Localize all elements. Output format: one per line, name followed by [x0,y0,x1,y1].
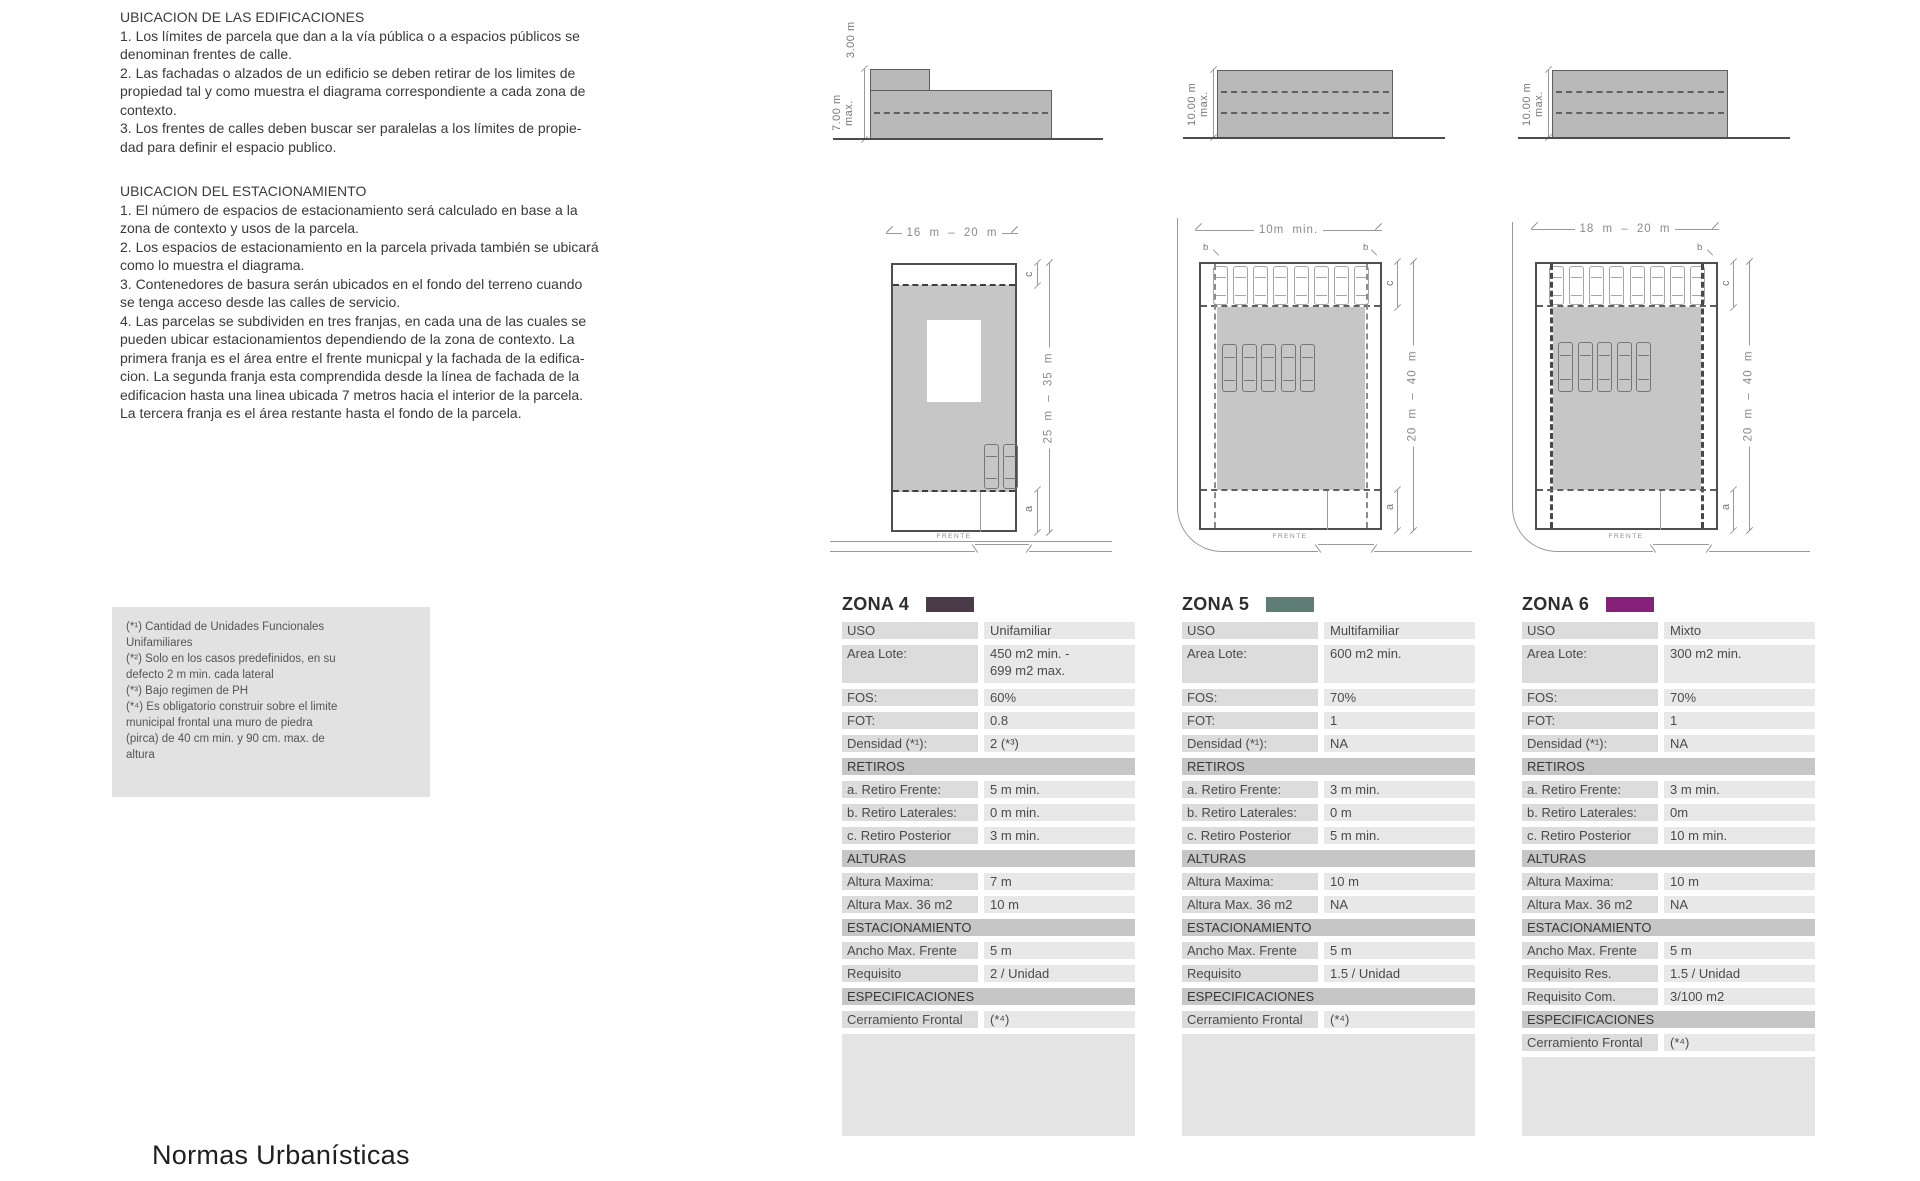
frente-label: FRENTE [914,533,994,540]
zone-rows: USOMixtoArea Lote:300 m2 min.FOS:70%FOT:… [1522,622,1815,1136]
table-row: Densidad (*¹):NA [1522,735,1815,752]
courtyard [927,320,981,402]
car-icon [1281,344,1296,392]
car-icon [984,444,999,489]
zone-rows: USOMultifamiliarArea Lote:600 m2 min.FOS… [1182,622,1475,1136]
row-value: 5 m min. [984,781,1135,798]
row-label: Area Lote: [842,645,978,683]
table-footer-block [1182,1034,1475,1136]
row-value: 600 m2 min. [1324,645,1475,683]
car-icon [1233,266,1248,305]
table-row: c. Retiro Posterior5 m min. [1182,827,1475,844]
setback-dashed-line [1221,91,1389,93]
table-section-header: RETIROS [842,758,1135,775]
table-section-header: ESTACIONAMIENTO [1522,919,1815,936]
setback-dashed-line [1556,112,1724,114]
row-label: Altura Max. 36 m2 [842,896,978,913]
car-icon [1589,266,1604,305]
table-row: Requisito Res.1.5 / Unidad [1522,965,1815,982]
row-label: Area Lote: [1182,645,1318,683]
page-title: Normas Urbanísticas [152,1140,410,1171]
row-value: (*⁴) [1664,1034,1815,1051]
zone-color-swatch [1606,597,1654,612]
row-label: FOS: [1522,689,1658,706]
dim-letter-c: c [1384,276,1396,290]
dim-letter-c: c [1023,267,1035,281]
table-row: Altura Maxima:7 m [842,873,1135,890]
row-label: c. Retiro Posterior [1182,827,1318,844]
ground-line [1518,137,1790,139]
parking-cars-row [1222,344,1315,392]
row-value: NA [1324,735,1475,752]
depth-dimension-label: 20 m – 40 m [1407,346,1420,447]
setback-c-bracket [1397,262,1398,307]
table-row: Area Lote:300 m2 min. [1522,645,1815,683]
table-row: Ancho Max. Frente5 m [1182,942,1475,959]
table-section-header: ALTURAS [1182,850,1475,867]
setback-dashed-line [1221,112,1389,114]
table-section-header: ESTACIONAMIENTO [842,919,1135,936]
driveway-curb-cut [1653,544,1709,553]
row-label: FOT: [1522,712,1658,729]
dim-letter-c: c [1720,276,1732,290]
dim-letter-a: a [1384,500,1396,514]
row-value: 7 m [984,873,1135,890]
table-section-header: ESPECIFICACIONES [1182,988,1475,1005]
row-label: Cerramiento Frontal [842,1011,978,1028]
row-label: a. Retiro Frente: [842,781,978,798]
row-label: a. Retiro Frente: [1182,781,1318,798]
max-height-label: 10.00 m max. [1186,74,1216,134]
car-icon [1261,344,1276,392]
upper-height-label: 3.00 m [845,16,857,64]
ground-line [1183,137,1445,139]
depth-dimension: 20 m – 40 m [1742,262,1756,530]
row-label: Cerramiento Frontal [1522,1034,1658,1051]
zone-title-row: ZONA 6 [1522,593,1815,615]
table-row: FOT:1 [1522,712,1815,729]
parking-cars-row [1213,266,1369,305]
max-height-label: 7.00 m max. [831,88,861,138]
row-label: FOS: [1182,689,1318,706]
row-value: 0 m min. [984,804,1135,821]
section-heading-estacionamiento: UBICACION DEL ESTACIONAMIENTO [120,182,690,201]
car-icon [1636,342,1651,392]
table-row: Requisito2 / Unidad [842,965,1135,982]
depth-dimension-label: 20 m – 40 m [1743,346,1756,447]
building-main-volume [870,90,1052,139]
table-row: c. Retiro Posterior10 m min. [1522,827,1815,844]
zone-table-zona5: ZONA 5 USOMultifamiliarArea Lote:600 m2 … [1182,593,1475,1136]
row-value: 3/100 m2 [1664,988,1815,1005]
building-upper-volume [870,69,930,91]
table-row: Requisito Com.3/100 m2 [1522,988,1815,1005]
width-dimension-label: 18 m – 20 m [1575,223,1676,236]
front-setback-dashed-line [1537,489,1716,491]
table-row: b. Retiro Laterales:0 m [1182,804,1475,821]
zone-name: ZONA 4 [842,594,926,615]
table-row: Requisito1.5 / Unidad [1182,965,1475,982]
table-row: Area Lote:600 m2 min. [1182,645,1475,683]
setback-dashed-line [874,112,1048,114]
table-row: Altura Maxima:10 m [1522,873,1815,890]
dim-letter-b: b [1363,242,1368,253]
table-row: FOS:70% [1522,689,1815,706]
table-section-header: ESPECIFICACIONES [1522,1011,1815,1028]
setback-c-bracket [1733,262,1734,307]
row-label: Altura Maxima: [1182,873,1318,890]
depth-dimension: 20 m – 40 m [1406,262,1420,530]
zone-table-zona4: ZONA 4 USOUnifamiliarArea Lote:450 m2 mi… [842,593,1135,1136]
buildable-area [1553,307,1701,490]
dim-letter-b: b [1203,242,1208,253]
section-heading-edificaciones: UBICACION DE LAS EDIFICACIONES [120,8,690,27]
row-value: 70% [1664,689,1815,706]
driveway-curb-cut [975,544,1029,553]
row-value: 5 m min. [1324,827,1475,844]
frente-label: FRENTE [1586,533,1666,540]
table-row: Ancho Max. Frente5 m [842,942,1135,959]
row-value: 10 m min. [1664,827,1815,844]
row-label: Requisito [842,965,978,982]
row-label: Requisito Com. [1522,988,1658,1005]
row-label: Ancho Max. Frente [842,942,978,959]
row-label: USO [1182,622,1318,639]
car-icon [1558,342,1573,392]
car-icon [1300,344,1315,392]
row-label: b. Retiro Laterales: [1522,804,1658,821]
zone-color-swatch [926,597,974,612]
setback-dashed-line [1556,91,1724,93]
dimension-tick [1371,249,1377,255]
row-label: a. Retiro Frente: [1522,781,1658,798]
table-row: a. Retiro Frente:3 m min. [1522,781,1815,798]
row-value: 3 m min. [1324,781,1475,798]
car-icon [1630,266,1645,305]
row-value: 60% [984,689,1135,706]
table-row: USOMixto [1522,622,1815,639]
row-value: NA [1324,896,1475,913]
row-value: 10 m [1664,873,1815,890]
setback-a-bracket [1037,490,1038,532]
table-row: Cerramiento Frontal(*⁴) [1182,1011,1475,1028]
left-text-column: UBICACION DE LAS EDIFICACIONES 1. Los lí… [120,8,690,423]
dim-letter-b: b [1697,242,1702,253]
driveway-line [1660,491,1661,530]
row-label: FOT: [842,712,978,729]
row-label: FOT: [1182,712,1318,729]
table-row: b. Retiro Laterales:0m [1522,804,1815,821]
row-label: Ancho Max. Frente [1182,942,1318,959]
table-row: Densidad (*¹):2 (*³) [842,735,1135,752]
row-value: 0 m [1324,804,1475,821]
car-icon [1597,342,1612,392]
driveway-line [1327,491,1328,530]
depth-dimension-label: 25 m – 35 m [1043,347,1056,448]
row-label: USO [842,622,978,639]
row-value: NA [1664,896,1815,913]
zone-name: ZONA 6 [1522,594,1606,615]
height-dimension-line [1213,70,1214,137]
table-row: FOT:1 [1182,712,1475,729]
car-icon [1569,266,1584,305]
section-body-edificaciones: 1. Los límites de parcela que dan a la v… [120,27,690,157]
row-label: FOS: [842,689,978,706]
row-value: 10 m [1324,873,1475,890]
table-row: c. Retiro Posterior3 m min. [842,827,1135,844]
table-section-header: ESTACIONAMIENTO [1182,919,1475,936]
street-line [830,541,1112,542]
row-value: (*⁴) [984,1011,1135,1028]
table-row: FOT:0.8 [842,712,1135,729]
driveway-curb-cut [1318,544,1374,553]
table-row: Altura Maxima:10 m [1182,873,1475,890]
dim-letter-a: a [1023,502,1035,516]
depth-dimension: 25 m – 35 m [1042,263,1056,532]
row-value: 2 (*³) [984,735,1135,752]
car-icon [1617,342,1632,392]
row-label: USO [1522,622,1658,639]
row-label: Altura Maxima: [842,873,978,890]
row-label: Densidad (*¹): [1522,735,1658,752]
row-label: Ancho Max. Frente [1522,942,1658,959]
car-icon [1578,342,1593,392]
row-value: 1 [1324,712,1475,729]
table-section-header: ESPECIFICACIONES [842,988,1135,1005]
table-row: Cerramiento Frontal(*⁴) [842,1011,1135,1028]
row-value: 5 m [1324,942,1475,959]
row-label: Altura Max. 36 m2 [1522,896,1658,913]
row-value: NA [1664,735,1815,752]
footnotes-box: (*¹) Cantidad de Unidades Funcionales Un… [112,607,430,797]
zone-table-zona6: ZONA 6 USOMixtoArea Lote:300 m2 min.FOS:… [1522,593,1815,1136]
building-volume [1217,70,1393,138]
row-label: Altura Max. 36 m2 [1182,896,1318,913]
width-dimension: 18 m – 20 m [1531,223,1719,236]
table-section-header: ALTURAS [1522,850,1815,867]
row-label: c. Retiro Posterior [1522,827,1658,844]
row-label: Requisito [1182,965,1318,982]
parking-cars-row [984,444,1018,489]
driveway-line [980,492,981,532]
row-label: Densidad (*¹): [1182,735,1318,752]
table-row: Altura Max. 36 m2NA [1182,896,1475,913]
table-row: FOS:60% [842,689,1135,706]
zone-title-row: ZONA 5 [1182,593,1475,615]
max-height-label: 10.00 m max. [1521,74,1551,134]
table-row: a. Retiro Frente:3 m min. [1182,781,1475,798]
row-value: 5 m [984,942,1135,959]
setback-a-bracket [1733,490,1734,530]
row-value: 1.5 / Unidad [1324,965,1475,982]
frente-label: FRENTE [1250,533,1330,540]
car-icon [1273,266,1288,305]
table-row: a. Retiro Frente:5 m min. [842,781,1135,798]
row-value: Unifamiliar [984,622,1135,639]
car-icon [1294,266,1309,305]
document-page: UBICACION DE LAS EDIFICACIONES 1. Los lí… [0,0,1920,1181]
zone-name: ZONA 5 [1182,594,1266,615]
height-dimension-line [864,69,865,139]
table-row: Altura Max. 36 m2NA [1522,896,1815,913]
row-label: Requisito Res. [1522,965,1658,982]
width-dimension-label: 16 m – 20 m [902,227,1003,240]
street-line [830,551,1112,552]
row-label: b. Retiro Laterales: [1182,804,1318,821]
dim-letter-a: a [1720,500,1732,514]
parking-cars-row [1549,266,1705,305]
table-row: USOUnifamiliar [842,622,1135,639]
car-icon [1222,344,1237,392]
row-value: 0.8 [984,712,1135,729]
table-row: Area Lote:450 m2 min. - 699 m2 max. [842,645,1135,683]
row-value: 0m [1664,804,1815,821]
row-value: 10 m [984,896,1135,913]
car-icon [1003,444,1018,489]
parking-cars-row [1558,342,1651,392]
height-dimension-line [1548,70,1549,137]
table-row: Altura Max. 36 m210 m [842,896,1135,913]
row-label: c. Retiro Posterior [842,827,978,844]
car-icon [1609,266,1624,305]
row-label: Cerramiento Frontal [1182,1011,1318,1028]
row-value: 70% [1324,689,1475,706]
row-value: 450 m2 min. - 699 m2 max. [984,645,1135,683]
table-row: Cerramiento Frontal(*⁴) [1522,1034,1815,1051]
width-dimension: 10m min. [1195,224,1382,237]
table-row: b. Retiro Laterales:0 m min. [842,804,1135,821]
row-value: 1.5 / Unidad [1664,965,1815,982]
car-icon [1253,266,1268,305]
section-body-estacionamiento: 1. El número de espacios de estacionamie… [120,201,690,423]
car-icon [1670,266,1685,305]
zone-color-swatch [1266,597,1314,612]
setback-c-bracket [1037,263,1038,285]
dimension-tick [1707,249,1713,255]
car-icon [1334,266,1349,305]
front-setback-dashed-line [893,490,1015,492]
buildable-area [1217,307,1365,490]
row-label: Densidad (*¹): [842,735,978,752]
table-row: USOMultifamiliar [1182,622,1475,639]
table-row: Densidad (*¹):NA [1182,735,1475,752]
zone-rows: USOUnifamiliarArea Lote:450 m2 min. - 69… [842,622,1135,1136]
table-section-header: RETIROS [1182,758,1475,775]
row-value: Multifamiliar [1324,622,1475,639]
row-value: 1 [1664,712,1815,729]
row-value: 3 m min. [984,827,1135,844]
rear-setback-dashed-line [893,284,1015,286]
building-volume [1552,70,1728,138]
table-footer-block [842,1034,1135,1136]
row-value: (*⁴) [1324,1011,1475,1028]
setback-a-bracket [1397,490,1398,530]
table-section-header: ALTURAS [842,850,1135,867]
table-row: Ancho Max. Frente5 m [1522,942,1815,959]
table-footer-block [1522,1057,1815,1136]
row-label: Altura Maxima: [1522,873,1658,890]
row-value: 5 m [1664,942,1815,959]
row-value: 300 m2 min. [1664,645,1815,683]
ground-line [833,138,1103,140]
car-icon [1314,266,1329,305]
front-setback-dashed-line [1201,489,1380,491]
car-icon [1650,266,1665,305]
car-icon [1242,344,1257,392]
width-dimension-label: 10m min. [1254,224,1323,237]
row-value: 2 / Unidad [984,965,1135,982]
table-section-header: RETIROS [1522,758,1815,775]
zone-title-row: ZONA 4 [842,593,1135,615]
width-dimension: 16 m – 20 m [886,227,1018,240]
row-value: 3 m min. [1664,781,1815,798]
row-value: Mixto [1664,622,1815,639]
row-label: b. Retiro Laterales: [842,804,978,821]
table-row: FOS:70% [1182,689,1475,706]
row-label: Area Lote: [1522,645,1658,683]
